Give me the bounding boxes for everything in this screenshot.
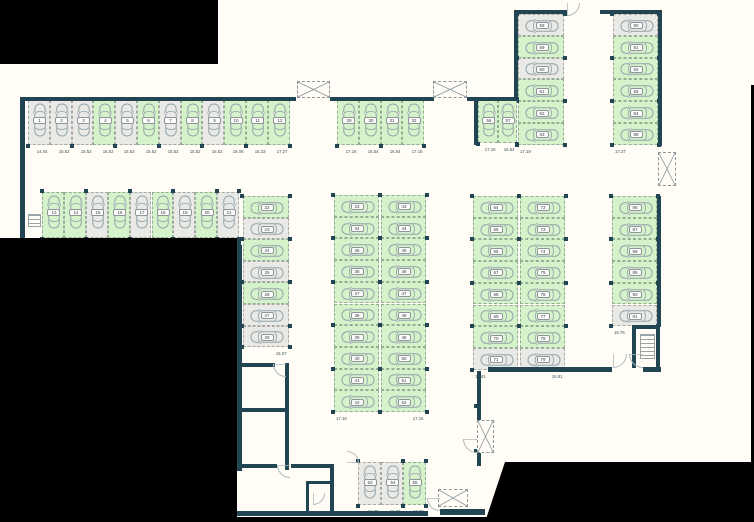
- stall-size: 16.12: [540, 233, 563, 238]
- parking-stall-78[interactable]: 7816.12: [520, 326, 565, 348]
- parking-stall-12[interactable]: 1217.27: [268, 100, 290, 145]
- column-post: [113, 144, 117, 148]
- stall-size: 15.52: [178, 139, 201, 144]
- door-swing-icon: [567, 3, 580, 16]
- column-post: [244, 144, 248, 148]
- stall-size: 17.27: [615, 139, 638, 144]
- wall-segment: [643, 367, 661, 372]
- parking-stall-35[interactable]: 3516.12: [334, 238, 379, 260]
- column-post: [564, 324, 568, 328]
- stall-number: 85: [630, 131, 643, 138]
- stall-number: 41: [351, 377, 364, 384]
- stall-number: 6: [142, 117, 155, 124]
- parking-stall-51[interactable]: 5116.12: [381, 369, 426, 391]
- column-post: [517, 281, 521, 285]
- stall-size: 15.52: [91, 139, 114, 144]
- column-post: [70, 144, 74, 148]
- stall-size: 16.67: [193, 232, 216, 237]
- stall-number: 21: [223, 209, 236, 216]
- stall-number: 46: [398, 268, 411, 275]
- parking-stall-59[interactable]: 5916.65: [518, 36, 564, 58]
- parking-stall-83[interactable]: 8316.53: [613, 79, 658, 101]
- stall-number: 64: [490, 204, 503, 211]
- column-post: [331, 323, 335, 327]
- parking-stall-26[interactable]: 2616.67: [243, 282, 289, 304]
- stall-number: 12: [273, 117, 286, 124]
- shaft-x-icon: [438, 489, 468, 507]
- parking-stall-82[interactable]: 8216.53: [613, 58, 658, 80]
- stall-number: 62: [536, 110, 549, 117]
- column-post: [470, 324, 474, 328]
- wall-segment: [20, 97, 296, 101]
- stall-number: 44: [398, 225, 411, 232]
- parking-stall-90[interactable]: 9016.25: [612, 283, 657, 305]
- parking-stall-81[interactable]: 8116.53: [613, 36, 658, 58]
- wall-segment: [306, 481, 333, 484]
- stall-number: 30: [364, 117, 377, 124]
- stall-size: 16.05: [520, 30, 543, 35]
- parking-stall-75[interactable]: 7516.12: [520, 261, 565, 283]
- stall-number: 54: [386, 479, 399, 486]
- stall-number: 73: [537, 226, 550, 233]
- wall-segment: [656, 325, 660, 368]
- shaft-x-icon: [477, 420, 494, 453]
- parking-stall-85[interactable]: 8517.27: [613, 123, 658, 145]
- stall-size: 16.12: [336, 384, 359, 389]
- column-post: [422, 144, 426, 148]
- stall-number: 32: [408, 117, 421, 124]
- stall-size: 16.53: [614, 233, 637, 238]
- scan-mask: [0, 0, 218, 64]
- parking-stall-39[interactable]: 3916.12: [334, 325, 379, 347]
- column-post: [610, 143, 614, 147]
- stall-number: 36: [351, 268, 364, 275]
- shaft-x-icon: [433, 81, 467, 98]
- parking-stall-27: 2716.67: [243, 304, 289, 326]
- stall-number: 52: [398, 399, 411, 406]
- stall-number: 68: [490, 291, 503, 298]
- stall-size: 16.54: [492, 137, 515, 142]
- parking-stall-87[interactable]: 8716.53: [612, 218, 657, 240]
- parking-stall-80: 8016.79: [613, 14, 658, 36]
- stall-size: 16.12: [401, 384, 424, 389]
- stall-size: 16.33: [520, 95, 543, 100]
- stall-size: 16.53: [615, 52, 638, 57]
- stall-number: 61: [536, 88, 549, 95]
- stall-size: 16.12: [475, 320, 498, 325]
- wall-segment: [291, 464, 333, 468]
- parking-stall-70[interactable]: 7016.12: [473, 326, 518, 348]
- parking-stall-38[interactable]: 3816.12: [334, 304, 379, 326]
- parking-stall-48[interactable]: 4816.12: [381, 304, 426, 326]
- stall-size: 17.27: [614, 212, 637, 217]
- column-post: [378, 280, 382, 284]
- stall-number: 82: [630, 66, 643, 73]
- column-post: [425, 280, 429, 284]
- stall-size: 16.67: [264, 255, 287, 260]
- stall-size: 16.12: [401, 276, 424, 281]
- column-post: [331, 367, 335, 371]
- parking-stall-67[interactable]: 6716.12: [473, 261, 518, 283]
- stall-number: 51: [398, 377, 411, 384]
- column-post: [401, 459, 405, 463]
- door-swing-icon: [277, 465, 290, 478]
- stall-number: 77: [537, 313, 550, 320]
- stall-size: 16.65: [520, 52, 543, 57]
- stall-size: 16.53: [614, 255, 637, 260]
- stall-number: 26: [261, 291, 274, 298]
- stall-number: 39: [351, 334, 364, 341]
- column-post: [200, 144, 204, 148]
- stall-size: 15.52: [47, 139, 70, 144]
- stall-size: 16.12: [540, 320, 563, 325]
- parking-stall-65[interactable]: 6516.12: [473, 218, 518, 240]
- wall-segment: [514, 10, 567, 14]
- stall-number: 69: [490, 313, 503, 320]
- stall-number: 88: [629, 248, 642, 255]
- stall-number: 90: [629, 291, 642, 298]
- parking-stall-28: 2816.07: [243, 326, 289, 348]
- door-swing-icon: [273, 364, 286, 377]
- column-post: [379, 144, 383, 148]
- parking-stall-23: 2316.00: [243, 218, 289, 240]
- stall-size: 16.12: [401, 297, 424, 302]
- column-post: [563, 56, 567, 60]
- stall-number: 63: [536, 131, 549, 138]
- parking-stall-54: 5416.00: [381, 462, 404, 505]
- stall-number: 86: [629, 204, 642, 211]
- stall-size: 16.53: [615, 73, 638, 78]
- scan-mask: [0, 238, 237, 522]
- column-post: [331, 410, 335, 414]
- wall-segment: [237, 245, 242, 471]
- parking-stall-89[interactable]: 8916.53: [612, 261, 657, 283]
- stall-size: 17.16: [401, 406, 424, 411]
- wall-segment: [600, 10, 662, 14]
- column-post: [609, 324, 613, 328]
- parking-stall-33[interactable]: 3317.16: [334, 195, 379, 217]
- parking-stall-74[interactable]: 7416.12: [520, 239, 565, 261]
- stall-number: 14: [69, 209, 82, 216]
- column-post: [517, 324, 521, 328]
- column-post: [517, 237, 521, 241]
- stall-number: 23: [261, 226, 274, 233]
- column-post: [609, 281, 613, 285]
- parking-stall-25: 2516.67: [243, 261, 289, 283]
- stall-number: 38: [351, 312, 364, 319]
- shaft-x-icon: [297, 81, 330, 98]
- parking-stall-43[interactable]: 4317.16: [381, 195, 426, 217]
- wall-segment: [330, 464, 334, 515]
- parking-stall-36[interactable]: 3616.12: [334, 260, 379, 282]
- parking-stall-73[interactable]: 7316.12: [520, 218, 565, 240]
- column-post: [128, 189, 132, 193]
- stall-number: 1: [33, 117, 46, 124]
- parking-stall-58: 5816.05: [518, 14, 564, 36]
- parking-stall-53: 5316.00: [358, 462, 381, 505]
- stall-number: 48: [398, 312, 411, 319]
- stall-number: 76: [537, 291, 550, 298]
- stall-number: 9: [208, 117, 221, 124]
- stall-number: 24: [261, 247, 274, 254]
- column-post: [564, 237, 568, 241]
- parking-stall-42[interactable]: 4217.16: [334, 390, 379, 412]
- stall-size: 17.16: [400, 139, 423, 144]
- stall-number: 78: [537, 335, 550, 342]
- stall-size: 16.12: [336, 254, 359, 259]
- column-post: [470, 368, 474, 372]
- stall-number: 8: [186, 117, 199, 124]
- stall-number: 74: [537, 248, 550, 255]
- stall-number: 55: [409, 479, 422, 486]
- stall-size: 16.25: [614, 298, 637, 303]
- wall-segment: [20, 97, 25, 247]
- parking-stall-86[interactable]: 8617.27: [612, 196, 657, 218]
- column-post: [288, 345, 292, 349]
- stall-number: 40: [351, 355, 364, 362]
- stall-number: 83: [630, 88, 643, 95]
- column-post: [563, 143, 567, 147]
- column-post: [470, 237, 474, 241]
- parking-stall-76[interactable]: 7616.12: [520, 283, 565, 305]
- column-post: [470, 281, 474, 285]
- stall-number: 27: [261, 312, 274, 319]
- column-post: [356, 504, 360, 508]
- stall-size: 16.12: [475, 233, 498, 238]
- stall-size: 16.12: [540, 277, 563, 282]
- parking-stall-72[interactable]: 7217.16: [520, 196, 565, 218]
- column-post: [157, 144, 161, 148]
- stall-number: 2: [55, 117, 68, 124]
- parking-stall-41[interactable]: 4116.12: [334, 369, 379, 391]
- stall-size: 16.12: [475, 277, 498, 282]
- parking-stall-24[interactable]: 2416.67: [243, 239, 289, 261]
- stall-size: 16.12: [336, 341, 359, 346]
- stall-size: 16.12: [401, 319, 424, 324]
- stall-size: 16.12: [401, 232, 424, 237]
- parking-stall-52[interactable]: 5217.16: [381, 390, 426, 412]
- stall-number: 65: [490, 226, 503, 233]
- stall-size: 16.67: [105, 232, 128, 237]
- parking-stall-68[interactable]: 6816.12: [473, 283, 518, 305]
- parking-stall-32[interactable]: 3217.16: [402, 100, 424, 145]
- column-post: [335, 144, 339, 148]
- stall-number: 49: [398, 334, 411, 341]
- column-post: [378, 193, 382, 197]
- parking-stall-64[interactable]: 6417.30: [473, 196, 518, 218]
- stall-size: 17.27: [265, 139, 288, 144]
- stall-number: 33: [351, 203, 364, 210]
- stall-number: 87: [629, 226, 642, 233]
- scan-mask: [0, 517, 490, 522]
- column-post: [331, 280, 335, 284]
- column-post: [609, 237, 613, 241]
- stall-number: 50: [398, 355, 411, 362]
- wall-segment: [514, 10, 518, 98]
- stall-number: 31: [386, 117, 399, 124]
- column-post: [288, 237, 292, 241]
- stall-number: 79: [537, 356, 550, 363]
- column-post: [609, 194, 613, 198]
- parking-stall-49[interactable]: 4916.12: [381, 325, 426, 347]
- stall-size: 16.67: [264, 276, 287, 281]
- stall-number: 89: [629, 269, 642, 276]
- stall-number: 25: [261, 269, 274, 276]
- stall-number: 58: [536, 22, 549, 29]
- stall-size: 15.52: [134, 139, 157, 144]
- column-post: [378, 410, 382, 414]
- column-post: [425, 410, 429, 414]
- stall-number: 28: [261, 334, 274, 341]
- stall-number: 45: [398, 247, 411, 254]
- parking-stall-55[interactable]: 5517.00: [403, 462, 426, 505]
- column-post: [288, 324, 292, 328]
- column-post: [40, 189, 44, 193]
- door-swing-icon: [613, 354, 627, 368]
- stall-size: 16.12: [475, 255, 498, 260]
- stall-size: 16.07: [264, 341, 287, 346]
- stall-size: 16.12: [336, 363, 359, 368]
- stall-size: 16.12: [475, 298, 498, 303]
- stall-number: 43: [398, 203, 411, 210]
- wall-segment: [658, 10, 662, 146]
- column-post: [610, 56, 614, 60]
- wall-segment: [237, 408, 289, 412]
- stall-number: 29: [342, 117, 355, 124]
- parking-stall-22[interactable]: 2217.16: [243, 196, 289, 218]
- stall-size: 16.12: [401, 363, 424, 368]
- stairs-icon: [640, 334, 655, 359]
- stall-size: 17.16: [401, 211, 424, 216]
- wall-segment: [330, 97, 434, 101]
- column-post: [517, 194, 521, 198]
- door-swing-icon: [346, 451, 358, 463]
- column-post: [425, 323, 429, 327]
- parking-stall-91: 9116.76: [612, 305, 657, 327]
- stall-number: 16: [113, 209, 126, 216]
- column-post: [470, 194, 474, 198]
- wall-segment: [440, 509, 485, 515]
- stall-number: 15: [91, 209, 104, 216]
- column-post: [564, 194, 568, 198]
- stall-size: 16.12: [336, 276, 359, 281]
- column-post: [215, 189, 219, 193]
- stall-number: 72: [537, 204, 550, 211]
- stall-number: 20: [201, 209, 214, 216]
- column-post: [425, 367, 429, 371]
- parking-stall-40[interactable]: 4016.12: [334, 347, 379, 369]
- parking-stall-50[interactable]: 5016.12: [381, 347, 426, 369]
- stall-number: 11: [251, 117, 264, 124]
- wall-segment: [233, 464, 277, 468]
- door-swing-icon: [313, 492, 325, 504]
- parking-stall-69[interactable]: 6916.12: [473, 305, 518, 327]
- parking-stall-77[interactable]: 7716.12: [520, 305, 565, 327]
- parking-stall-66[interactable]: 6616.12: [473, 239, 518, 261]
- stall-size: 16.67: [264, 320, 287, 325]
- wall-segment: [285, 363, 289, 470]
- parking-stall-44[interactable]: 4416.12: [381, 217, 426, 239]
- stall-number: 19: [179, 209, 192, 216]
- stall-number: 42: [351, 399, 364, 406]
- column-post: [331, 193, 335, 197]
- stall-size: 16.12: [401, 341, 424, 346]
- parking-stall-61[interactable]: 6116.33: [518, 79, 564, 101]
- stall-size: 16.79: [615, 30, 638, 35]
- stall-size: 16.12: [475, 342, 498, 347]
- parking-stall-60: 6016.27: [518, 58, 564, 80]
- parking-stall-62[interactable]: 6216.12: [518, 101, 564, 123]
- parking-stall-47[interactable]: 4716.12: [381, 282, 426, 304]
- column-post: [425, 236, 429, 240]
- stall-number: 7: [164, 117, 177, 124]
- stall-number: 75: [537, 269, 550, 276]
- column-post: [378, 236, 382, 240]
- column-post: [474, 404, 478, 408]
- stall-size: 16.12: [520, 117, 543, 122]
- parking-floor-plan: 114.04215.52315.52415.52515.52615.52715.…: [0, 0, 754, 522]
- wall-segment: [657, 196, 661, 327]
- stall-size: 17.19: [520, 139, 543, 144]
- stall-number: 60: [536, 66, 549, 73]
- shaft-x-icon: [658, 152, 676, 186]
- stall-size: 16.00: [378, 499, 401, 504]
- parking-stall-57[interactable]: 5716.54: [498, 100, 518, 143]
- parking-stall-88[interactable]: 8816.53: [612, 239, 657, 261]
- stall-size: 16.54: [356, 139, 379, 144]
- stall-number: 70: [490, 335, 503, 342]
- stall-number: 57: [502, 117, 515, 124]
- parking-stall-63[interactable]: 6317.19: [518, 123, 564, 145]
- stairs-icon: [28, 214, 41, 227]
- stall-size: 16.12: [336, 232, 359, 237]
- parking-stall-37[interactable]: 3716.12: [334, 282, 379, 304]
- parking-stall-34[interactable]: 3416.12: [334, 217, 379, 239]
- stall-number: 22: [261, 204, 274, 211]
- stall-number: 5: [121, 117, 134, 124]
- parking-stall-45[interactable]: 4516.12: [381, 238, 426, 260]
- stall-size: 16.12: [401, 254, 424, 259]
- column-post: [401, 504, 405, 508]
- parking-stall-84[interactable]: 8416.53: [613, 101, 658, 123]
- stall-size: 17.16: [336, 211, 359, 216]
- parking-stall-46[interactable]: 4616.12: [381, 260, 426, 282]
- stall-size: 17.16: [540, 212, 563, 217]
- door-swing-icon: [427, 498, 440, 511]
- wall-segment: [477, 453, 481, 466]
- stall-size: 16.67: [264, 298, 287, 303]
- stall-size: 16.67: [61, 232, 84, 237]
- stall-number: 53: [364, 479, 377, 486]
- stall-number: 3: [77, 117, 90, 124]
- stall-number: 18: [157, 209, 170, 216]
- wall-segment: [488, 367, 612, 372]
- stall-number: 37: [351, 290, 364, 297]
- stall-size: 16.67: [149, 232, 172, 237]
- column-post: [237, 189, 241, 193]
- stall-number: 91: [629, 313, 642, 320]
- column-post: [288, 280, 292, 284]
- stall-size: 17.30: [475, 212, 498, 217]
- stall-number: 10: [230, 117, 243, 124]
- stall-size: 16.12: [540, 342, 563, 347]
- stall-size: 16.27: [520, 73, 543, 78]
- column-post: [26, 144, 30, 148]
- door-swing-icon: [463, 439, 477, 453]
- stall-number: 4: [99, 117, 112, 124]
- column-post: [564, 281, 568, 285]
- stall-number: 81: [630, 44, 643, 51]
